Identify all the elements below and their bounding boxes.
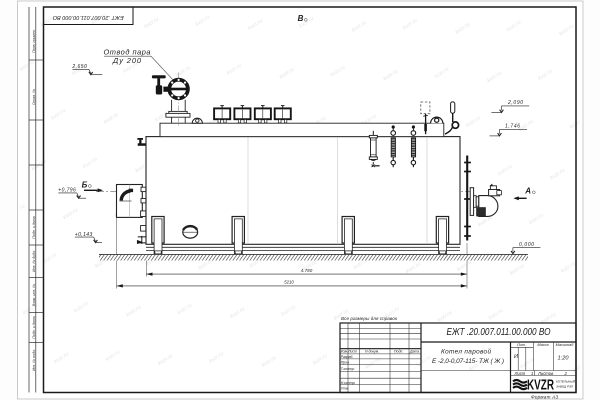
- svg-text:N докум.: N докум.: [365, 350, 379, 354]
- svg-text:Листов: Листов: [537, 371, 554, 376]
- svg-text:ЕЖТ .20.007.011.00.000 ВО: ЕЖТ .20.007.011.00.000 ВО: [447, 327, 551, 338]
- svg-text:Е -2,0-0,07-115- ТЖ ( Ж ): Е -2,0-0,07-115- ТЖ ( Ж ): [432, 358, 504, 365]
- svg-text:И: И: [514, 354, 518, 360]
- svg-text:ЗАВОД РЭП: ЗАВОД РЭП: [556, 385, 574, 389]
- svg-text:Утв.: Утв.: [341, 387, 349, 391]
- svg-text:Лист: Лист: [514, 371, 526, 376]
- svg-text:Разраб.: Разраб.: [341, 355, 354, 359]
- svg-text:В: В: [298, 14, 304, 23]
- svg-text:5210: 5210: [284, 280, 294, 285]
- svg-text:4.780: 4.780: [301, 268, 313, 273]
- svg-text:KVZR: KVZR: [527, 378, 554, 394]
- svg-text:Инв. № дубл.: Инв. № дубл.: [32, 250, 36, 272]
- svg-text:Подп. и дата: Подп. и дата: [32, 316, 36, 339]
- svg-text:Подп. и дата: Подп. и дата: [32, 216, 36, 239]
- svg-text:Масштаб: Масштаб: [556, 343, 575, 347]
- svg-text:Справ. №: Справ. №: [32, 89, 36, 105]
- svg-text:0,000: 0,000: [519, 242, 534, 248]
- svg-text:Подп.: Подп.: [394, 350, 403, 354]
- svg-text:2,090: 2,090: [507, 100, 523, 106]
- svg-text:Перв. примен.: Перв. примен.: [32, 29, 36, 53]
- svg-text:Н.контр.: Н.контр.: [341, 381, 356, 385]
- svg-text:Т.контр.: Т.контр.: [341, 367, 355, 371]
- svg-text:Дата: Дата: [409, 350, 419, 354]
- svg-text:Изм.Лист: Изм.Лист: [341, 350, 358, 354]
- svg-text:1: 1: [531, 371, 533, 376]
- svg-text:1:20: 1:20: [558, 356, 570, 362]
- svg-text:Все размеры для справок: Все размеры для справок: [341, 316, 398, 321]
- svg-text:КОТЕЛЬНЫЙ: КОТЕЛЬНЫЙ: [556, 380, 576, 384]
- svg-text:Пров.: Пров.: [341, 361, 350, 365]
- svg-text:Взам. инв. №: Взам. инв. №: [32, 284, 36, 306]
- svg-text:ЕЖТ .20.007.011.00.000 ВО: ЕЖТ .20.007.011.00.000 ВО: [52, 14, 124, 20]
- svg-text:Ду 200: Ду 200: [112, 56, 142, 65]
- svg-text:Формат А3: Формат А3: [531, 394, 558, 399]
- svg-text:Инв. № подл.: Инв. № подл.: [32, 349, 36, 371]
- svg-text:Котел паровой: Котел паровой: [441, 348, 491, 356]
- svg-text:А: А: [524, 187, 531, 196]
- svg-text:1,746: 1,746: [505, 124, 520, 130]
- svg-text:Лит.: Лит.: [516, 343, 526, 347]
- svg-text:Б: Б: [82, 180, 88, 189]
- svg-text:Масса: Масса: [537, 343, 548, 347]
